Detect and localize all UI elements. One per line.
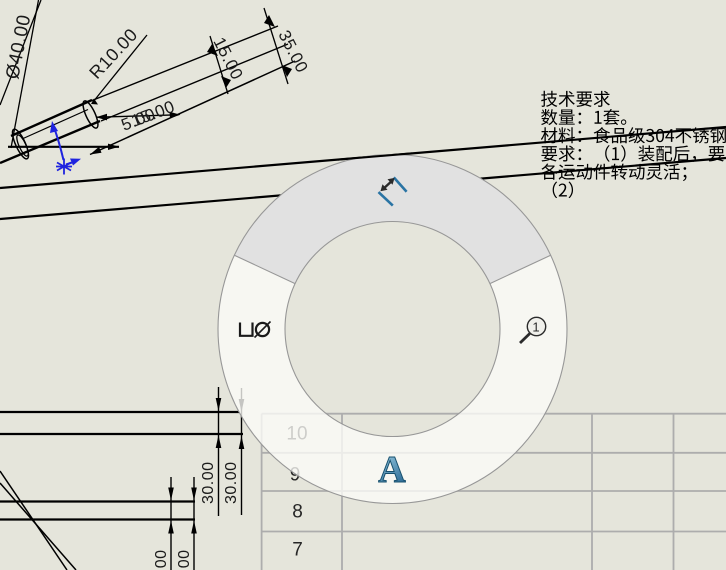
svg-text:30.00: 30.00 [200,461,217,504]
svg-text:30.00: 30.00 [176,549,193,570]
svg-text:30.00: 30.00 [223,461,240,504]
svg-text:1: 1 [532,320,539,335]
svg-text:7: 7 [292,540,303,561]
svg-text:30.00: 30.00 [153,549,170,570]
svg-text:A: A [378,449,406,491]
svg-text:8: 8 [292,502,303,523]
